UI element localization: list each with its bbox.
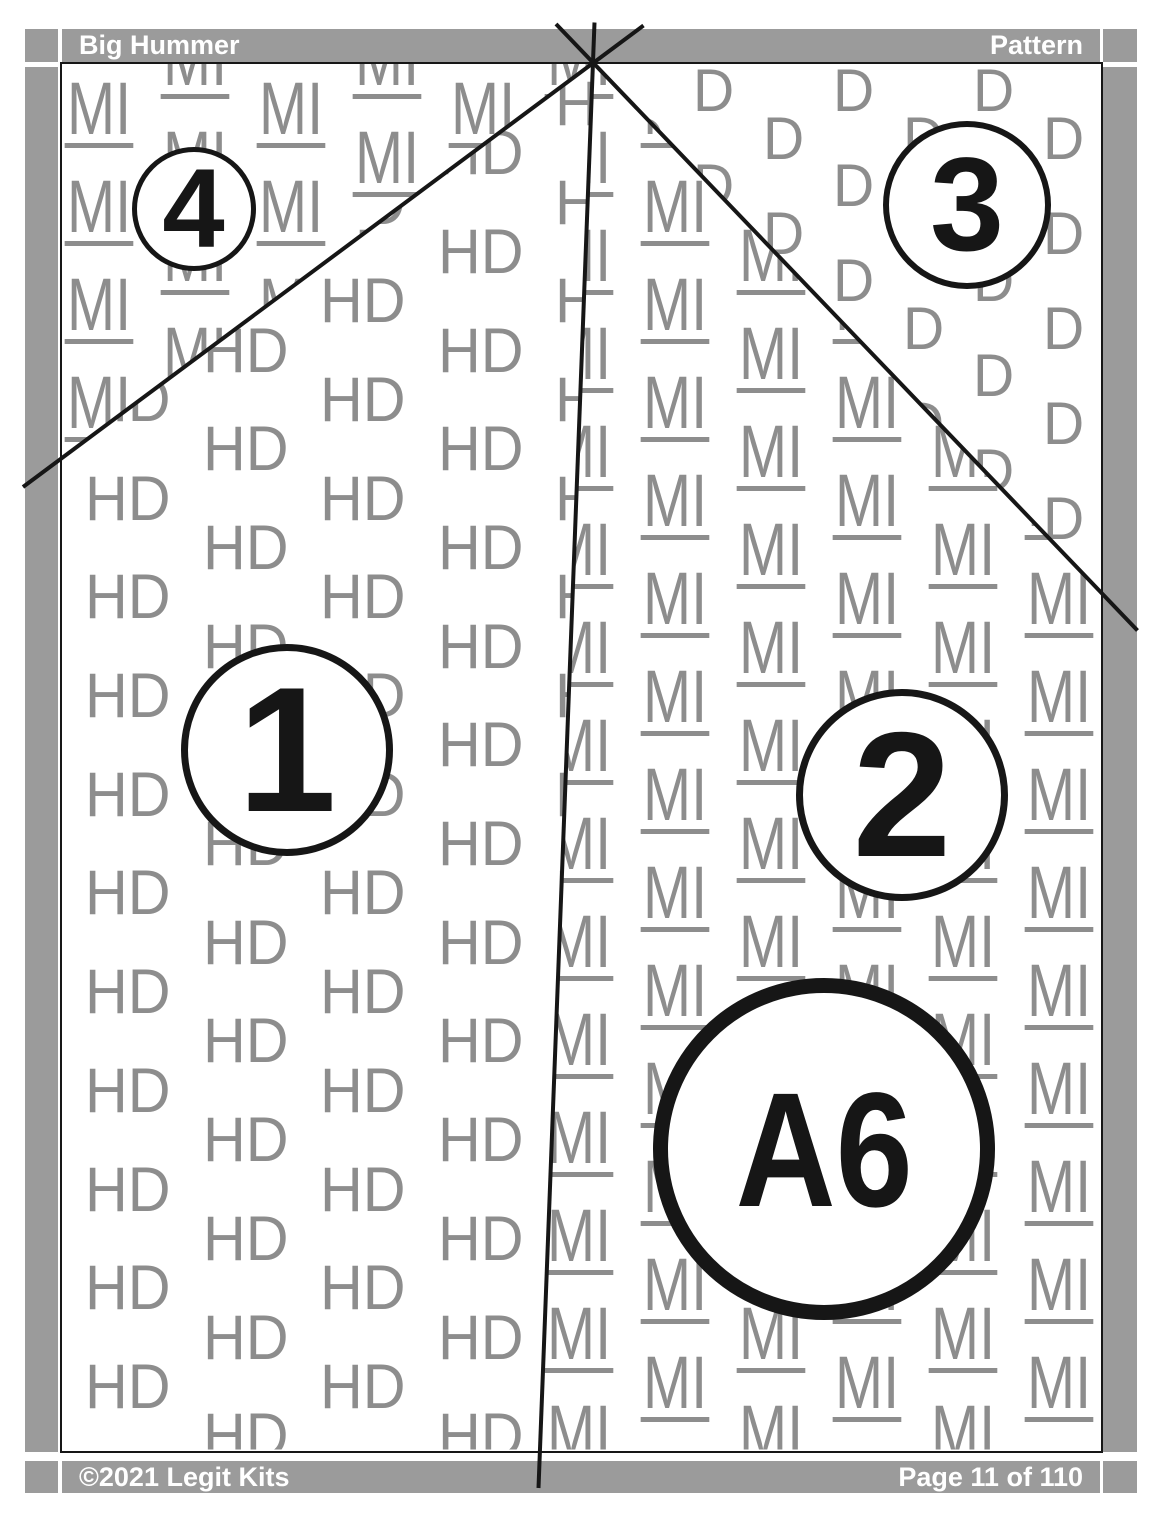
fabric-code-text: MI bbox=[547, 1395, 611, 1451]
fabric-code-text: MI bbox=[739, 905, 803, 979]
fabric-code-text: HD bbox=[203, 517, 289, 580]
watermark-tile-hd: HD bbox=[320, 973, 406, 1024]
section-3-number: 3 bbox=[930, 139, 1004, 272]
fabric-code-text: HD bbox=[438, 418, 524, 481]
watermark-tile-d: D bbox=[973, 72, 1014, 121]
watermark-tile-hd: HD bbox=[320, 1269, 406, 1320]
watermark-tile-mi: MI bbox=[739, 331, 803, 393]
fabric-code-text: MI bbox=[835, 464, 899, 538]
fabric-code-text: HD bbox=[320, 1060, 406, 1123]
fabric-code-text: D bbox=[833, 156, 874, 216]
watermark-tile-d: D bbox=[763, 64, 804, 74]
fabric-code-text: MI bbox=[643, 268, 707, 342]
watermark-tile-mi: MI bbox=[931, 919, 995, 981]
header-right-label: Pattern bbox=[990, 32, 1083, 59]
fabric-code-text: MI bbox=[547, 1101, 611, 1175]
watermark-tile-mi: MI bbox=[547, 1115, 611, 1177]
fabric-code-text: HD bbox=[438, 1010, 524, 1073]
watermark-tile-mi: MI bbox=[643, 478, 707, 540]
watermark-tile-d: D bbox=[833, 72, 874, 121]
watermark-tile-d: D bbox=[1043, 405, 1084, 454]
watermark-tile-mi: MI bbox=[259, 184, 323, 246]
fabric-code-text: MI bbox=[1027, 1444, 1091, 1451]
fabric-code-text: MI bbox=[643, 170, 707, 244]
watermark-tile-hd: HD bbox=[203, 1417, 289, 1450]
fabric-code-text: HD bbox=[203, 1405, 289, 1450]
fabric-code-text: MI bbox=[355, 121, 419, 195]
watermark-tile-hd: HD bbox=[438, 628, 524, 679]
watermark-tile-mi: MI bbox=[67, 184, 131, 246]
watermark-tile-mi: MI bbox=[931, 1311, 995, 1373]
fabric-code-text: MI bbox=[67, 268, 131, 342]
watermark-tile-hd: HD bbox=[85, 874, 171, 925]
top-right-corner-cell bbox=[1103, 29, 1137, 62]
fabric-code-text: HD bbox=[85, 961, 171, 1024]
watermark-tile-mi: MI bbox=[835, 380, 899, 442]
fabric-code-text: HD bbox=[203, 418, 289, 481]
watermark-tile-mi: MI bbox=[739, 429, 803, 491]
watermark-tile-mi: MI bbox=[547, 1311, 611, 1373]
fabric-code-text: MI bbox=[931, 1297, 995, 1371]
watermark-tile-mi: MI bbox=[739, 1311, 803, 1373]
watermark-tile-hd: HD bbox=[203, 430, 289, 481]
piece-circle-a6: A6 bbox=[653, 978, 995, 1320]
fabric-code-text: HD bbox=[438, 616, 524, 679]
watermark-tile-hd: HD bbox=[320, 1368, 406, 1419]
fabric-code-text: MI bbox=[643, 660, 707, 734]
fabric-code-text: HD bbox=[438, 912, 524, 975]
fabric-code-text: MI bbox=[739, 513, 803, 587]
fabric-code-text: HD bbox=[320, 566, 406, 629]
watermark-tile-hd: HD bbox=[203, 1220, 289, 1271]
fabric-code-text: HD bbox=[320, 1257, 406, 1320]
fabric-code-text: MI bbox=[931, 905, 995, 979]
right-margin-strip bbox=[1103, 67, 1137, 1453]
watermark-tile-d: D bbox=[1043, 1450, 1084, 1451]
watermark-tile-d: D bbox=[693, 72, 734, 121]
fabric-code-text: HD bbox=[85, 665, 171, 728]
watermark-tile-mi: MI bbox=[1027, 1262, 1091, 1324]
fabric-code-text: HD bbox=[203, 912, 289, 975]
watermark-tile-hd: HD bbox=[320, 1171, 406, 1222]
watermark-tile-hd: HD bbox=[320, 578, 406, 629]
fabric-code-text: MI bbox=[259, 170, 323, 244]
fabric-code-text: D bbox=[623, 64, 664, 74]
fabric-code-text: HD bbox=[320, 270, 406, 333]
watermark-tile-mi: MI bbox=[739, 919, 803, 981]
fabric-code-text: D bbox=[1043, 64, 1084, 74]
fabric-code-text: MI bbox=[547, 1003, 611, 1077]
watermark-tile-mi: MI bbox=[1027, 1066, 1091, 1128]
watermark-tile-hd: HD bbox=[438, 924, 524, 975]
fabric-code-text: MI bbox=[1027, 1150, 1091, 1224]
watermark-tile-mi: MI bbox=[643, 1262, 707, 1324]
fabric-code-text: MI bbox=[739, 1395, 803, 1451]
fabric-code-text: HD bbox=[85, 468, 171, 531]
fabric-code-text: MI bbox=[643, 856, 707, 930]
fabric-code-text: D bbox=[833, 64, 874, 121]
fabric-code-text: MI bbox=[67, 72, 131, 146]
watermark-tile-hd: HD bbox=[438, 1417, 524, 1450]
watermark-tile-hd: HD bbox=[203, 924, 289, 975]
watermark-tile-mi: MI bbox=[835, 1360, 899, 1422]
watermark-tile-d: D bbox=[623, 64, 664, 74]
fabric-code-text: MI bbox=[643, 1444, 707, 1451]
watermark-tile-mi: MI bbox=[67, 282, 131, 344]
fabric-code-text: HD bbox=[438, 320, 524, 383]
left-margin-strip bbox=[25, 67, 58, 1453]
watermark-tile-mi: MI bbox=[1027, 870, 1091, 932]
watermark-tile-hd: HD bbox=[85, 1368, 171, 1419]
fabric-code-text: D bbox=[763, 109, 804, 169]
watermark-tile-d: D bbox=[1043, 64, 1084, 74]
fabric-code-text: MI bbox=[1027, 1248, 1091, 1322]
watermark-tile-d: D bbox=[763, 1450, 804, 1451]
watermark-tile-hd: HD bbox=[438, 1121, 524, 1172]
fabric-code-text: HD bbox=[438, 714, 524, 777]
watermark-tile-mi: MI bbox=[355, 135, 419, 197]
fabric-code-text: D bbox=[903, 64, 944, 74]
fabric-code-text: HD bbox=[320, 468, 406, 531]
pattern-page: Big Hummer Pattern ©2021 Legit Kits Page… bbox=[0, 0, 1165, 1516]
watermark-tile-hd: HD bbox=[85, 480, 171, 531]
header-bar: Big Hummer Pattern bbox=[62, 29, 1100, 62]
watermark-tile-hd: HD bbox=[203, 1022, 289, 1073]
fabric-code-text: HD bbox=[203, 1010, 289, 1073]
fabric-code-text: MI bbox=[835, 366, 899, 440]
watermark-tile-mi: MI bbox=[739, 1409, 803, 1451]
bottom-right-corner-cell bbox=[1103, 1461, 1137, 1493]
watermark-tile-mi: MI bbox=[547, 1017, 611, 1079]
section-circle-4: 4 bbox=[132, 147, 256, 271]
fabric-code-text: MI bbox=[1027, 758, 1091, 832]
watermark-tile-hd: HD bbox=[438, 726, 524, 777]
section-circle-3: 3 bbox=[883, 121, 1051, 289]
section-4-number: 4 bbox=[162, 153, 224, 265]
fabric-code-text: MI bbox=[835, 1346, 899, 1420]
watermark-tile-hd: HD bbox=[438, 1220, 524, 1271]
watermark-tile-hd: HD bbox=[85, 677, 171, 728]
watermark-tile-hd: HD bbox=[438, 332, 524, 383]
fabric-code-text: MI bbox=[643, 366, 707, 440]
top-left-corner-cell bbox=[25, 29, 58, 62]
watermark-tile-mi: MI bbox=[931, 625, 995, 687]
fabric-code-text: HD bbox=[85, 1159, 171, 1222]
watermark-tile-d: D bbox=[903, 1450, 944, 1451]
fabric-code-text: MI bbox=[739, 611, 803, 685]
fabric-code-text: MI bbox=[643, 954, 707, 1028]
fabric-code-text: MI bbox=[1027, 1052, 1091, 1126]
piece-label-a6: A6 bbox=[735, 1068, 912, 1231]
fabric-code-text: HD bbox=[438, 1208, 524, 1271]
watermark-tile-mi: MI bbox=[547, 1409, 611, 1451]
fabric-code-text: D bbox=[1043, 109, 1084, 169]
watermark-tile-hd: HD bbox=[203, 1121, 289, 1172]
fabric-code-text: D bbox=[903, 299, 944, 359]
watermark-tile-mi: MI bbox=[643, 184, 707, 246]
page-number-text: Page 11 of 110 bbox=[898, 1464, 1083, 1491]
fabric-code-text: D bbox=[1043, 299, 1084, 359]
watermark-tile-mi: MI bbox=[643, 674, 707, 736]
watermark-tile-hd: HD bbox=[438, 529, 524, 580]
fabric-code-text: MI bbox=[931, 611, 995, 685]
footer-bar: ©2021 Legit Kits Page 11 of 110 bbox=[62, 1461, 1100, 1493]
watermark-tile-hd: HD bbox=[438, 825, 524, 876]
watermark-tile-d: D bbox=[623, 1450, 664, 1451]
watermark-tile-hd: HD bbox=[438, 430, 524, 481]
watermark-tile-hd: HD bbox=[438, 1022, 524, 1073]
fabric-code-text: MI bbox=[643, 562, 707, 636]
fabric-code-text: D bbox=[1043, 394, 1084, 454]
fabric-code-text: MI bbox=[67, 170, 131, 244]
watermark-tile-hd: HD bbox=[85, 1171, 171, 1222]
fabric-code-text: MI bbox=[835, 1444, 899, 1451]
section-1-number: 1 bbox=[238, 661, 337, 839]
fabric-code-text: HD bbox=[85, 1356, 171, 1419]
fabric-code-text: MI bbox=[643, 1346, 707, 1420]
watermark-tile-mi: MI bbox=[259, 86, 323, 148]
fabric-code-text: MI bbox=[259, 72, 323, 146]
watermark-tile-d: D bbox=[903, 310, 944, 359]
fabric-code-text: HD bbox=[438, 1109, 524, 1172]
fabric-code-text: HD bbox=[438, 1405, 524, 1450]
watermark-tile-hd: HD bbox=[438, 233, 524, 284]
fabric-code-text: HD bbox=[320, 1356, 406, 1419]
watermark-tile-mi: MI bbox=[1027, 576, 1091, 638]
watermark-tile-d: D bbox=[973, 357, 1014, 406]
watermark-tile-mi: MI bbox=[835, 478, 899, 540]
watermark-tile-d: D bbox=[1043, 310, 1084, 359]
watermark-tile-mi: MI bbox=[1027, 674, 1091, 736]
watermark-tile-hd: HD bbox=[320, 1072, 406, 1123]
watermark-tile-hd: HD bbox=[85, 1072, 171, 1123]
watermark-tile-hd: HD bbox=[203, 1319, 289, 1370]
fabric-code-text: MI bbox=[643, 464, 707, 538]
fabric-code-text: MI bbox=[739, 415, 803, 489]
watermark-tile-mi: MI bbox=[1027, 772, 1091, 834]
watermark-tile-mi: MI bbox=[739, 625, 803, 687]
fabric-code-text: HD bbox=[85, 862, 171, 925]
fabric-code-text: MI bbox=[355, 64, 419, 97]
watermark-tile-hd: HD bbox=[320, 381, 406, 432]
watermark-tile-mi: MI bbox=[643, 1360, 707, 1422]
fabric-code-text: MI bbox=[931, 513, 995, 587]
fabric-code-text: MI bbox=[1027, 562, 1091, 636]
fabric-code-text: HD bbox=[85, 1060, 171, 1123]
fabric-code-text: D bbox=[973, 64, 1014, 121]
watermark-tile-mi: MI bbox=[643, 772, 707, 834]
fabric-code-text: HD bbox=[438, 221, 524, 284]
fabric-code-text: D bbox=[833, 251, 874, 311]
watermark-tile-d: D bbox=[903, 64, 944, 74]
watermark-tile-hd: HD bbox=[438, 1319, 524, 1370]
fabric-code-text: MI bbox=[163, 64, 227, 97]
watermark-tile-mi: MI bbox=[67, 86, 131, 148]
watermark-tile-mi: MI bbox=[931, 527, 995, 589]
watermark-tile-mi: MI bbox=[1027, 1360, 1091, 1422]
bottom-left-corner-cell bbox=[25, 1461, 58, 1493]
section-2-number: 2 bbox=[853, 706, 952, 884]
watermark-tile-mi: MI bbox=[355, 64, 419, 99]
fabric-code-text: MI bbox=[547, 1297, 611, 1371]
fabric-code-text: MI bbox=[1027, 660, 1091, 734]
fabric-code-text: HD bbox=[203, 1208, 289, 1271]
fabric-code-text: HD bbox=[320, 1159, 406, 1222]
watermark-tile-mi: MI bbox=[163, 64, 227, 99]
fabric-code-text: HD bbox=[203, 1109, 289, 1172]
watermark-tile-hd: HD bbox=[320, 874, 406, 925]
fabric-code-text: MI bbox=[1027, 1346, 1091, 1420]
fabric-code-text: HD bbox=[85, 1257, 171, 1320]
watermark-tile-d: D bbox=[763, 120, 804, 169]
fabric-code-text: HD bbox=[438, 517, 524, 580]
watermark-tile-hd: HD bbox=[85, 578, 171, 629]
fabric-code-text: HD bbox=[320, 369, 406, 432]
watermark-tile-mi: MI bbox=[643, 870, 707, 932]
copyright-text: ©2021 Legit Kits bbox=[79, 1464, 289, 1491]
fabric-code-text: HD bbox=[438, 813, 524, 876]
fabric-code-text: D bbox=[763, 64, 804, 74]
fabric-code-text: HD bbox=[85, 764, 171, 827]
fabric-code-text: D bbox=[973, 346, 1014, 406]
watermark-tile-mi: MI bbox=[931, 1409, 995, 1451]
fabric-code-text: MI bbox=[1027, 856, 1091, 930]
fabric-code-text: MI bbox=[739, 317, 803, 391]
watermark-tile-mi: MI bbox=[739, 527, 803, 589]
watermark-tile-hd: HD bbox=[85, 1269, 171, 1320]
watermark-tile-mi: MI bbox=[643, 282, 707, 344]
fabric-code-text: HD bbox=[320, 862, 406, 925]
pattern-title: Big Hummer bbox=[79, 32, 240, 59]
fabric-code-text: MI bbox=[1027, 954, 1091, 1028]
section-circle-2: 2 bbox=[796, 689, 1008, 901]
watermark-tile-mi: MI bbox=[739, 821, 803, 883]
watermark-tile-hd: HD bbox=[320, 282, 406, 333]
watermark-tile-mi: MI bbox=[643, 968, 707, 1030]
watermark-tile-mi: MI bbox=[643, 576, 707, 638]
watermark-tile-hd: HD bbox=[85, 776, 171, 827]
watermark-tile-mi: MI bbox=[547, 1213, 611, 1275]
fabric-code-text: D bbox=[693, 64, 734, 121]
watermark-tile-mi: MI bbox=[1027, 1164, 1091, 1226]
fabric-code-text: MI bbox=[739, 807, 803, 881]
watermark-tile-hd: HD bbox=[85, 973, 171, 1024]
fabric-code-text: HD bbox=[203, 1307, 289, 1370]
section-circle-1: 1 bbox=[181, 644, 393, 856]
fabric-code-text: HD bbox=[438, 1307, 524, 1370]
fabric-code-text: MI bbox=[739, 709, 803, 783]
fabric-code-text: HD bbox=[85, 566, 171, 629]
watermark-tile-d: D bbox=[1043, 120, 1084, 169]
fabric-code-text: MI bbox=[643, 758, 707, 832]
watermark-tile-mi: MI bbox=[643, 380, 707, 442]
watermark-tile-mi: MI bbox=[739, 723, 803, 785]
watermark-tile-d: D bbox=[833, 167, 874, 216]
fabric-code-text: HD bbox=[320, 961, 406, 1024]
watermark-tile-d: D bbox=[833, 262, 874, 311]
watermark-tile-hd: HD bbox=[203, 529, 289, 580]
fabric-code-text: MI bbox=[931, 1395, 995, 1451]
watermark-tile-mi: MI bbox=[1027, 968, 1091, 1030]
watermark-tile-hd: HD bbox=[320, 480, 406, 531]
fabric-code-text: MI bbox=[835, 562, 899, 636]
watermark-tile-mi: MI bbox=[835, 576, 899, 638]
fabric-code-text: MI bbox=[547, 1199, 611, 1273]
